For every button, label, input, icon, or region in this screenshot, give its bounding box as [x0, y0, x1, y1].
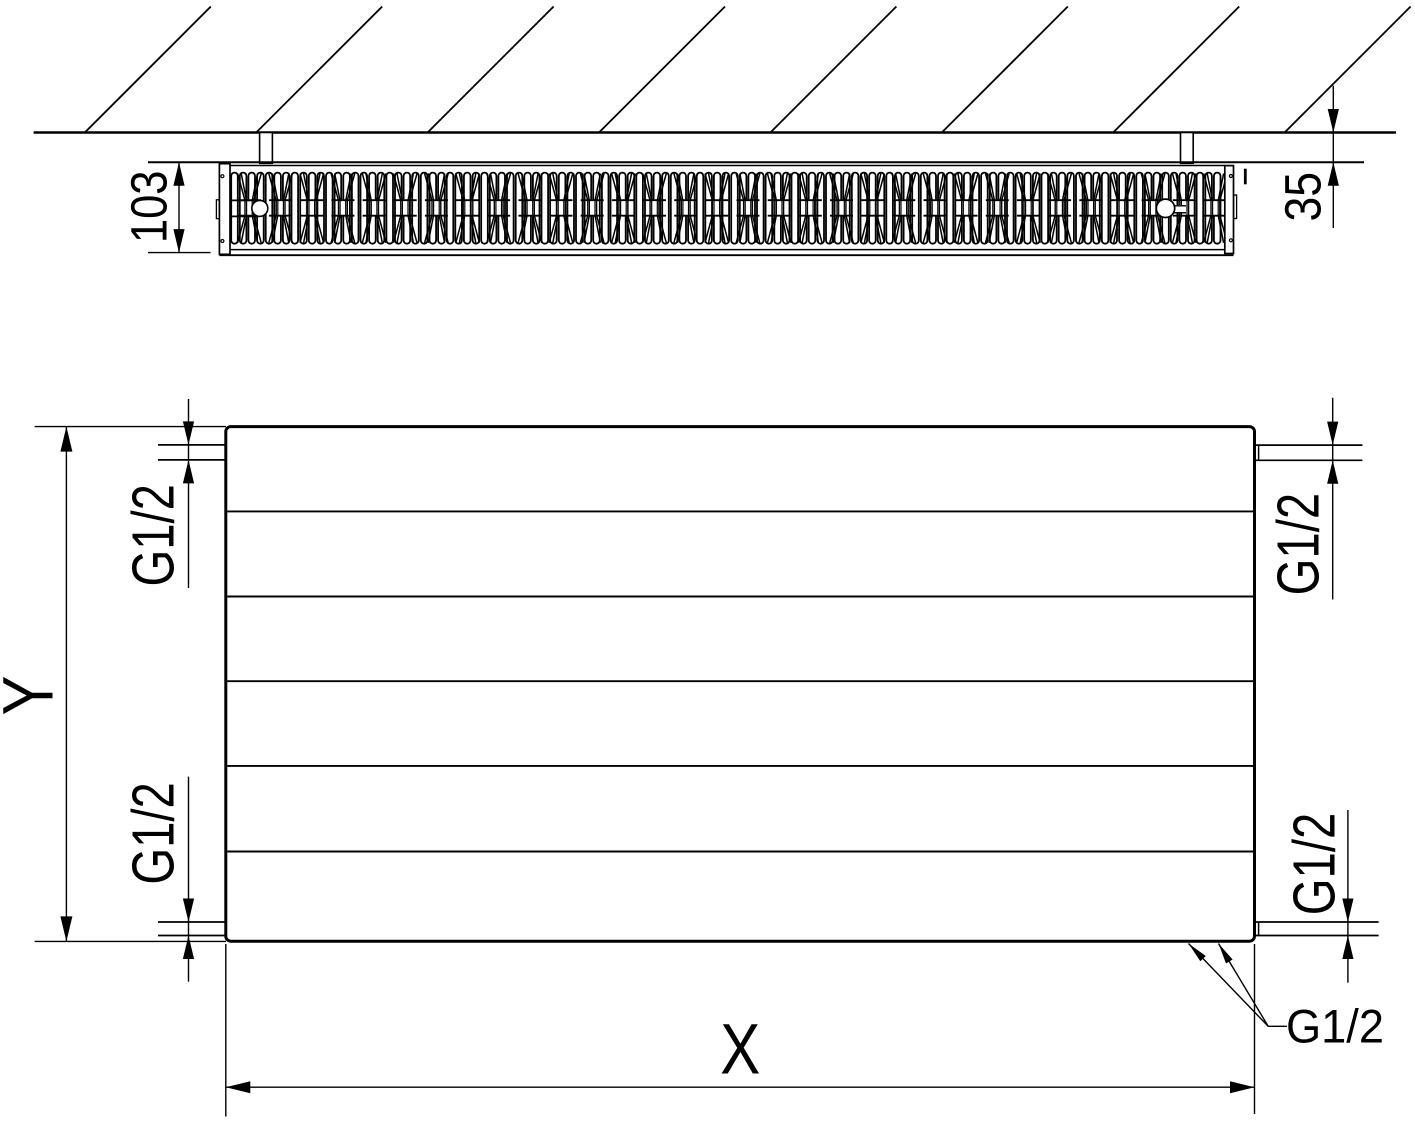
- svg-text:Y: Y: [0, 676, 69, 716]
- svg-text:G1/2: G1/2: [1281, 813, 1348, 916]
- svg-text:G1/2: G1/2: [119, 484, 186, 587]
- svg-text:G1/2: G1/2: [1264, 493, 1331, 596]
- svg-text:G1/2: G1/2: [1286, 1001, 1384, 1054]
- svg-text:G1/2: G1/2: [119, 782, 186, 885]
- svg-text:35: 35: [1275, 172, 1332, 222]
- svg-text:X: X: [720, 1010, 760, 1089]
- svg-text:103: 103: [120, 171, 177, 244]
